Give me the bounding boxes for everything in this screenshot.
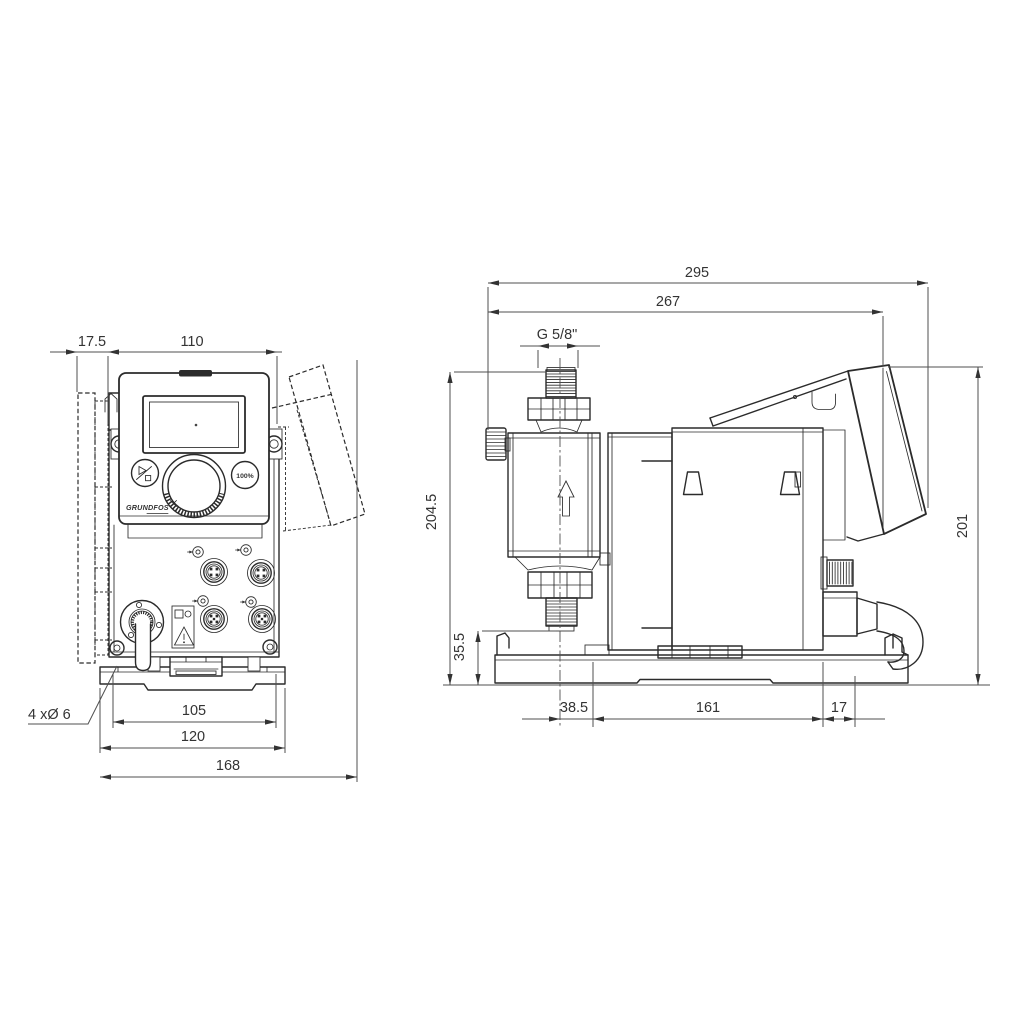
suction-valve (515, 557, 600, 631)
power-cable (136, 624, 151, 671)
warning-label (172, 606, 194, 648)
dim-thread-label: G 5/8" (537, 327, 578, 343)
thread-hatch (830, 562, 852, 584)
capacity-button-label: 100% (236, 473, 253, 480)
technical-drawing-page: 100% GRUNDFOS (0, 0, 1024, 1024)
dimension-204-5: 204.5 (424, 372, 453, 685)
front-view: 100% GRUNDFOS (28, 334, 365, 782)
signal-connectors (188, 545, 276, 633)
logo-text: GRUNDFOS (126, 503, 169, 512)
control-panel: 100% GRUNDFOS (111, 370, 282, 538)
dim-38-5-label: 38.5 (560, 700, 588, 716)
dimension-17-5-and-110: 17.5 110 (50, 334, 282, 355)
mounting-holes-label: 4 xØ 6 (28, 707, 71, 723)
dimension-295: 295 (488, 265, 928, 286)
connector-symbol-icon (188, 547, 204, 558)
discharge-valve (528, 368, 590, 433)
vent-valve-knob[interactable] (486, 428, 510, 460)
dim-267-label: 267 (656, 294, 680, 310)
dim-201-label: 201 (955, 514, 971, 538)
dimension-105: 105 (113, 703, 276, 725)
m12-connector[interactable] (201, 559, 228, 586)
m12-connector[interactable] (248, 560, 275, 587)
motor-housing (672, 428, 845, 650)
thread-hatch (546, 601, 577, 625)
mains-plug-dashed-outline (272, 365, 365, 532)
side-view: 295 267 G 5/8" 204.5 (424, 265, 990, 727)
dim-plate-width-label: 120 (181, 729, 205, 745)
dim-overall-length-label: 295 (685, 265, 709, 281)
rear-cable-assembly (821, 557, 923, 669)
dim-housing-width-label: 110 (180, 334, 203, 350)
dimension-bottom-chain: 38.5 161 17 (522, 700, 885, 722)
base-plate (495, 633, 908, 683)
dim-wall-offset-label: 17.5 (78, 334, 106, 350)
wall-hook-detail (105, 394, 117, 413)
mains-plug (710, 365, 926, 541)
dim-161-label: 161 (696, 700, 720, 716)
dim-35-5-label: 35.5 (452, 633, 468, 661)
dimension-267: 267 (488, 294, 883, 315)
thread-hatch (546, 374, 576, 396)
connector-symbol-icon (241, 597, 257, 608)
dimension-168: 168 (100, 758, 357, 780)
dimension-120: 120 (100, 729, 285, 751)
dim-17-label: 17 (831, 700, 847, 716)
base-left-upstand (497, 633, 509, 655)
pump-casing (608, 433, 672, 650)
plug-latch (812, 392, 836, 410)
dim-overall-height-label: 204.5 (424, 494, 440, 530)
connector-symbol-icon (236, 545, 252, 556)
connector-symbol-icon (193, 596, 209, 607)
dimension-35-5: 35.5 (452, 631, 481, 685)
dim-overall-width-label: 168 (216, 758, 240, 774)
panel-top-tab (179, 370, 212, 377)
dim-hole-spacing-label: 105 (182, 703, 206, 719)
dimension-thread: G 5/8" (520, 327, 600, 349)
dosing-head (486, 368, 610, 632)
cable-strain-relief (857, 598, 877, 634)
dimension-201: 201 (955, 367, 981, 685)
dosing-pump-dimensional-drawing: 100% GRUNDFOS (0, 0, 1024, 1024)
mounting-clips (684, 472, 801, 495)
